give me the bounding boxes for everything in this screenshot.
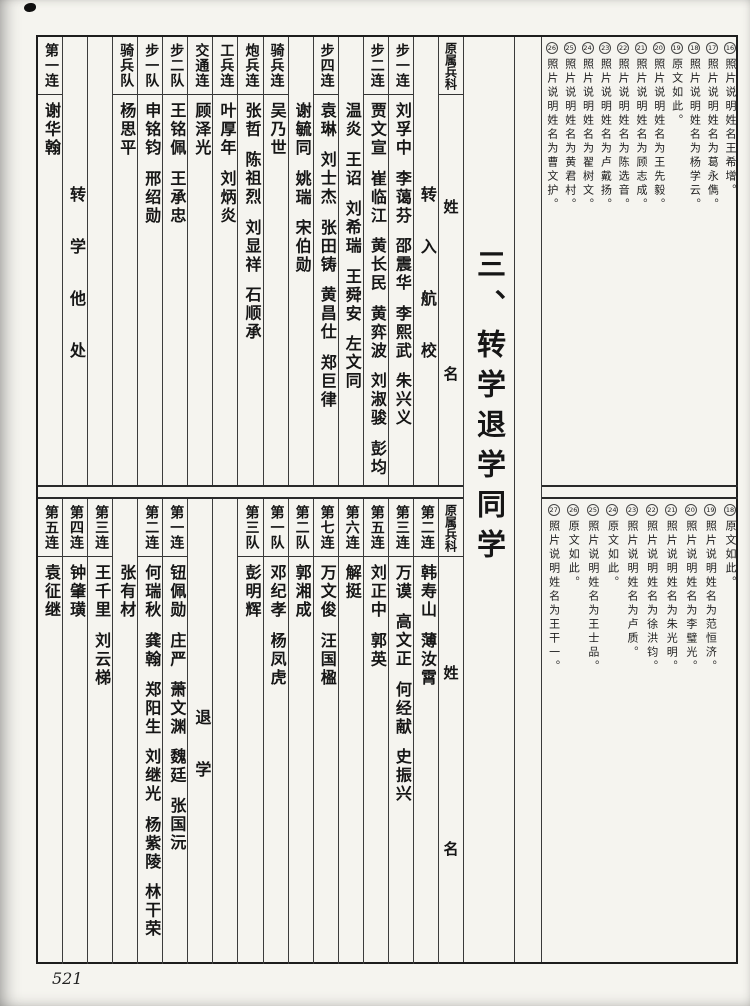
footnote-number: 26	[567, 504, 579, 516]
footnote: 25照片说明姓名为王士品。	[581, 499, 601, 964]
company-column: 工兵连叶厚年刘炳炎	[212, 37, 237, 485]
footnote-number: 20	[653, 42, 665, 54]
name-header-given: 名	[443, 838, 458, 859]
empty-column	[212, 499, 237, 964]
footnote: 19照片说明姓名为范恒济。	[699, 499, 719, 964]
student-name: 谢华翰	[38, 102, 62, 158]
student-name: 龚翰	[138, 632, 162, 669]
name-header-given: 名	[443, 363, 458, 384]
company-header	[339, 37, 363, 95]
category-label-column: 转学他处	[62, 37, 87, 485]
student-name: 王承忠	[163, 170, 187, 226]
footnote-number: 24	[606, 504, 618, 516]
student-name: 钟肇璜	[63, 564, 87, 620]
student-name: 林干荣	[138, 883, 162, 939]
footnote-number: 24	[582, 42, 594, 54]
footnote-number: 20	[685, 504, 697, 516]
name-header: 姓 名	[439, 557, 463, 964]
names-list: 袁琳刘士杰张田铸黄昌仕郑巨律	[314, 95, 338, 485]
company-column: 第三连万谟高文正何经献史振兴	[388, 499, 413, 964]
company-overflow-column: 温炎王诏刘希瑞王舜安左文同	[338, 37, 363, 485]
company-column: 第三连王千里刘云梯	[87, 499, 112, 964]
company-header	[213, 499, 237, 557]
company-header: 骑兵队	[113, 37, 137, 95]
footnotes-bottom: 18原文如此。19照片说明姓名为范恒济。20照片说明姓名为李璧光。21照片说明姓…	[542, 497, 738, 964]
student-name: 郑阳生	[138, 681, 162, 737]
company-header: 第六连	[339, 499, 363, 557]
student-name: 张有材	[113, 564, 137, 620]
student-name: 申铭钧	[138, 102, 162, 158]
names-list: 张有材	[113, 557, 137, 964]
student-name: 邓纪孝	[264, 564, 288, 620]
names-list: 王铭佩王承忠	[163, 95, 187, 485]
company-header: 步二队	[163, 37, 187, 95]
student-name: 高文正	[389, 613, 413, 669]
student-name: 袁征继	[38, 564, 62, 620]
company-column: 炮兵连张哲陈祖烈刘显祥石顺承	[237, 37, 262, 485]
footnote-number: 19	[671, 42, 683, 54]
footnotes-top: 16照片说明姓名王希增。17照片说明姓名为葛永儁。18照片说明姓名为杨学云。19…	[542, 37, 738, 487]
student-name: 史振兴	[389, 748, 413, 804]
company-column: 第六连解挺	[338, 499, 363, 964]
student-name: 杨凤虎	[264, 632, 288, 688]
footnote: 18照片说明姓名为杨学云。	[685, 37, 703, 485]
name-header-surname: 姓	[443, 662, 458, 683]
student-name: 萧文渊	[163, 681, 187, 737]
company-header: 第一连	[38, 37, 62, 95]
student-name: 薄汝霄	[414, 632, 438, 688]
title-column-right-rule	[514, 37, 515, 962]
student-name: 左文同	[339, 335, 363, 391]
student-name: 魏廷	[163, 748, 187, 785]
footnote: 20照片说明姓名为李璧光。	[679, 499, 699, 964]
company-header: 骑兵连	[264, 37, 288, 95]
company-header	[63, 37, 87, 95]
footnote: 21照片说明姓名为朱光明。	[660, 499, 680, 964]
student-name: 朱兴义	[389, 372, 413, 428]
footnote-number: 23	[599, 42, 611, 54]
company-header: 第一队	[264, 499, 288, 557]
names-list: 张哲陈祖烈刘显祥石顺承	[238, 95, 262, 485]
names-list: 温炎王诏刘希瑞王舜安左文同	[339, 95, 363, 485]
footnote-number: 27	[548, 504, 560, 516]
table-header-column: 原属兵科 姓 名	[438, 37, 463, 485]
student-name: 石顺承	[239, 286, 263, 342]
company-header: 第三连	[389, 499, 413, 557]
ink-mark	[24, 3, 36, 12]
company-column: 第五连袁征继	[38, 499, 62, 964]
company-column: 第二队郭湘成	[288, 499, 313, 964]
company-column: 第七连万文俊汪国楹	[313, 499, 338, 964]
company-column: 第五连刘正中郭英	[363, 499, 388, 964]
name-header: 姓 名	[439, 95, 463, 485]
student-name: 邢绍勋	[138, 170, 162, 226]
company-header: 步二连	[364, 37, 388, 95]
section-title: 三、转学退学同学	[463, 37, 514, 962]
footnote: 24照片说明姓名为翟树文。	[578, 37, 596, 485]
student-name: 郭英	[364, 632, 388, 669]
student-name: 刘孚中	[389, 102, 413, 158]
student-name: 刘希瑞	[339, 200, 363, 256]
footnote: 22照片说明姓名为陈选音。	[613, 37, 631, 485]
footnote: 17照片说明姓名为葛永儁。	[702, 37, 720, 485]
company-header: 第二连	[414, 499, 438, 557]
footnote-number: 21	[635, 42, 647, 54]
category-label: 转学他处	[63, 95, 87, 485]
student-name: 杨紫陵	[138, 816, 162, 872]
names-list: 杨思平	[113, 95, 137, 485]
student-name: 刘云梯	[88, 632, 112, 688]
footnote-number: 23	[626, 504, 638, 516]
company-column: 交通连顾泽光	[187, 37, 212, 485]
company-overflow-column: 谢毓同姚瑞宋伯勋	[288, 37, 313, 485]
student-name: 王铭佩	[163, 102, 187, 158]
company-column: 第三队彭明辉	[237, 499, 262, 964]
company-header: 步一连	[389, 37, 413, 95]
student-name: 贾文宣	[364, 102, 388, 158]
student-name: 刘正中	[364, 564, 388, 620]
student-name: 姚瑞	[289, 170, 313, 207]
student-name: 庄严	[163, 632, 187, 669]
student-name: 王舜安	[339, 268, 363, 324]
student-name: 郭湘成	[289, 564, 313, 620]
company-column: 步一连刘孚中李蔼芬邵震华李熙武朱兴义郭岳生	[388, 37, 413, 485]
footnote: 23照片说明姓名为卢质。	[620, 499, 640, 964]
names-list: 钟肇璜	[63, 557, 87, 964]
names-list: 解挺	[339, 557, 363, 964]
withdrawal-table: 原属兵科 姓 名 第二连韩寿山薄汝霄第三连万谟高文正何经献史振兴第五连刘正中郭英…	[38, 497, 463, 964]
company-header	[88, 37, 112, 95]
student-name: 黄弈波	[364, 305, 388, 361]
company-column: 骑兵队杨思平	[112, 37, 137, 485]
student-name: 韩寿山	[414, 564, 438, 620]
footnote: 21照片说明姓名为顾志成。	[631, 37, 649, 485]
student-name: 陈祖烈	[239, 151, 263, 207]
empty-column	[87, 37, 112, 485]
footnote-number: 19	[704, 504, 716, 516]
student-name: 张田铸	[314, 219, 338, 275]
student-name: 邵震华	[389, 237, 413, 293]
student-name: 刘士杰	[314, 151, 338, 207]
footnote-number: 25	[587, 504, 599, 516]
student-name: 黄长民	[364, 237, 388, 293]
company-header: 第二连	[138, 499, 162, 557]
names-list: 吴乃世	[264, 95, 288, 485]
student-name: 刘继光	[138, 748, 162, 804]
company-column: 第一连钮佩勋庄严萧文渊魏廷张国沅	[162, 499, 187, 964]
company-header: 炮兵连	[238, 37, 262, 95]
student-name: 刘淑骏	[364, 372, 388, 428]
student-name: 刘炳炎	[213, 170, 237, 226]
company-column: 第一队邓纪孝杨凤虎	[263, 499, 288, 964]
student-name: 张国沅	[163, 797, 187, 853]
company-header: 工兵连	[213, 37, 237, 95]
names-list: 邓纪孝杨凤虎	[264, 557, 288, 964]
footnote: 22照片说明姓名为徐洪钧。	[640, 499, 660, 964]
names-list: 何瑞秋龚翰郑阳生刘继光杨紫陵林干荣	[138, 557, 162, 964]
footnote-number: 22	[617, 42, 629, 54]
company-header	[289, 37, 313, 95]
company-header: 第五连	[38, 499, 62, 557]
footnote: 27照片说明姓名为王干一。	[542, 499, 562, 964]
category-label-column: 转入航校	[413, 37, 438, 485]
student-name: 黄昌仕	[314, 286, 338, 342]
company-header	[113, 499, 137, 557]
names-list	[213, 557, 237, 964]
names-list: 谢华翰	[38, 95, 62, 485]
names-list: 刘孚中李蔼芬邵震华李熙武朱兴义郭岳生	[389, 95, 413, 485]
company-column: 步二队王铭佩王承忠	[162, 37, 187, 485]
names-list: 郭湘成	[289, 557, 313, 964]
student-name: 钮佩勋	[163, 564, 187, 620]
company-header: 第三连	[88, 499, 112, 557]
names-list: 顾泽光	[188, 95, 212, 485]
names-list: 钮佩勋庄严萧文渊魏廷张国沅	[163, 557, 187, 964]
footnote: 26原文如此。	[562, 499, 582, 964]
footnote: 26照片说明姓名为曹文护。	[542, 37, 560, 485]
names-list: 袁征继	[38, 557, 62, 964]
company-column: 第一连谢华翰	[38, 37, 62, 485]
names-list: 万文俊汪国楹	[314, 557, 338, 964]
student-name: 王诏	[339, 151, 363, 188]
student-name: 谢毓同	[289, 102, 313, 158]
company-column: 第二连何瑞秋龚翰郑阳生刘继光杨紫陵林干荣	[137, 499, 162, 964]
footnote: 18原文如此。	[718, 499, 738, 964]
branch-header: 原属兵科	[439, 37, 463, 95]
student-name: 何瑞秋	[138, 564, 162, 620]
company-column: 第二连韩寿山薄汝霄	[413, 499, 438, 964]
student-name: 万文俊	[314, 564, 338, 620]
names-list: 谢毓同姚瑞宋伯勋	[289, 95, 313, 485]
names-list: 王千里刘云梯	[88, 557, 112, 964]
footnote-number: 22	[646, 504, 658, 516]
company-header: 第二队	[289, 499, 313, 557]
student-name: 郑巨律	[314, 354, 338, 410]
company-column: 骑兵连吴乃世	[263, 37, 288, 485]
student-name: 崔临江	[364, 170, 388, 226]
names-list: 彭明辉	[238, 557, 262, 964]
company-header: 第七连	[314, 499, 338, 557]
company-header: 第一连	[163, 499, 187, 557]
category-label-column: 退学	[187, 499, 212, 964]
student-name: 彭明辉	[239, 564, 263, 620]
student-name: 李熙武	[389, 305, 413, 361]
student-name: 彭均	[364, 440, 388, 477]
category-label: 退学	[188, 557, 212, 964]
names-list: 万谟高文正何经献史振兴	[389, 557, 413, 964]
scanned-book-page: 三、转学退学同学 原属兵科 姓 名 转入航校步一连刘孚中李蔼芬邵震华李熙武朱兴义…	[0, 0, 750, 1006]
footnote: 23照片说明姓名为卢戴扬。	[596, 37, 614, 485]
table-header-column: 原属兵科 姓 名	[438, 499, 463, 964]
company-header	[414, 37, 438, 95]
names-list: 申铭钧邢绍勋	[138, 95, 162, 485]
student-name: 刘显祥	[239, 219, 263, 275]
names-list: 叶厚年刘炳炎	[213, 95, 237, 485]
names-list: 韩寿山薄汝霄	[414, 557, 438, 964]
footnote-number: 18	[688, 42, 700, 54]
footnote-number: 16	[724, 42, 736, 54]
transfer-table: 原属兵科 姓 名 转入航校步一连刘孚中李蔼芬邵震华李熙武朱兴义郭岳生步二连贾文宣…	[38, 37, 463, 487]
footnote-number: 21	[665, 504, 677, 516]
names-list: 贾文宣崔临江黄长民黄弈波刘淑骏彭均	[364, 95, 388, 485]
company-column: 步一队申铭钧邢绍勋	[137, 37, 162, 485]
branch-header: 原属兵科	[439, 499, 463, 557]
footnote: 19原文如此。	[667, 37, 685, 485]
footnote-number: 26	[546, 42, 558, 54]
student-name: 汪国楹	[314, 632, 338, 688]
footnote: 24原文如此。	[601, 499, 621, 964]
names-list	[88, 95, 112, 485]
footnote: 25照片说明姓名为黄君村。	[560, 37, 578, 485]
page-number: 521	[52, 969, 83, 988]
category-label: 转入航校	[414, 95, 438, 485]
footnote-number: 17	[706, 42, 718, 54]
names-list: 刘正中郭英	[364, 557, 388, 964]
student-name: 袁琳	[314, 102, 338, 139]
company-header: 步四连	[314, 37, 338, 95]
student-name: 宋伯勋	[289, 219, 313, 275]
company-column: 步二连贾文宣崔临江黄长民黄弈波刘淑骏彭均	[363, 37, 388, 485]
footnote: 20照片说明姓名为王先毅。	[649, 37, 667, 485]
name-header-surname: 姓	[443, 196, 458, 217]
student-name: 李蔼芬	[389, 170, 413, 226]
footnote-number: 25	[564, 42, 576, 54]
student-name: 顾泽光	[188, 102, 212, 158]
company-overflow-column: 张有材	[112, 499, 137, 964]
company-header	[188, 499, 212, 557]
student-name: 解挺	[339, 564, 363, 601]
company-column: 第四连钟肇璜	[62, 499, 87, 964]
student-name: 吴乃世	[264, 102, 288, 158]
student-name: 何经献	[389, 681, 413, 737]
company-header: 第三队	[238, 499, 262, 557]
footnote: 16照片说明姓名王希增。	[720, 37, 738, 485]
footnote-number: 18	[724, 504, 736, 516]
student-name: 王千里	[88, 564, 112, 620]
student-name: 温炎	[339, 102, 363, 139]
student-name: 万谟	[389, 564, 413, 601]
company-header: 交通连	[188, 37, 212, 95]
company-header: 第四连	[63, 499, 87, 557]
student-name: 杨思平	[113, 102, 137, 158]
company-header: 第五连	[364, 499, 388, 557]
student-name: 张哲	[239, 102, 263, 139]
company-column: 步四连袁琳刘士杰张田铸黄昌仕郑巨律	[313, 37, 338, 485]
company-header: 步一队	[138, 37, 162, 95]
student-name: 叶厚年	[213, 102, 237, 158]
